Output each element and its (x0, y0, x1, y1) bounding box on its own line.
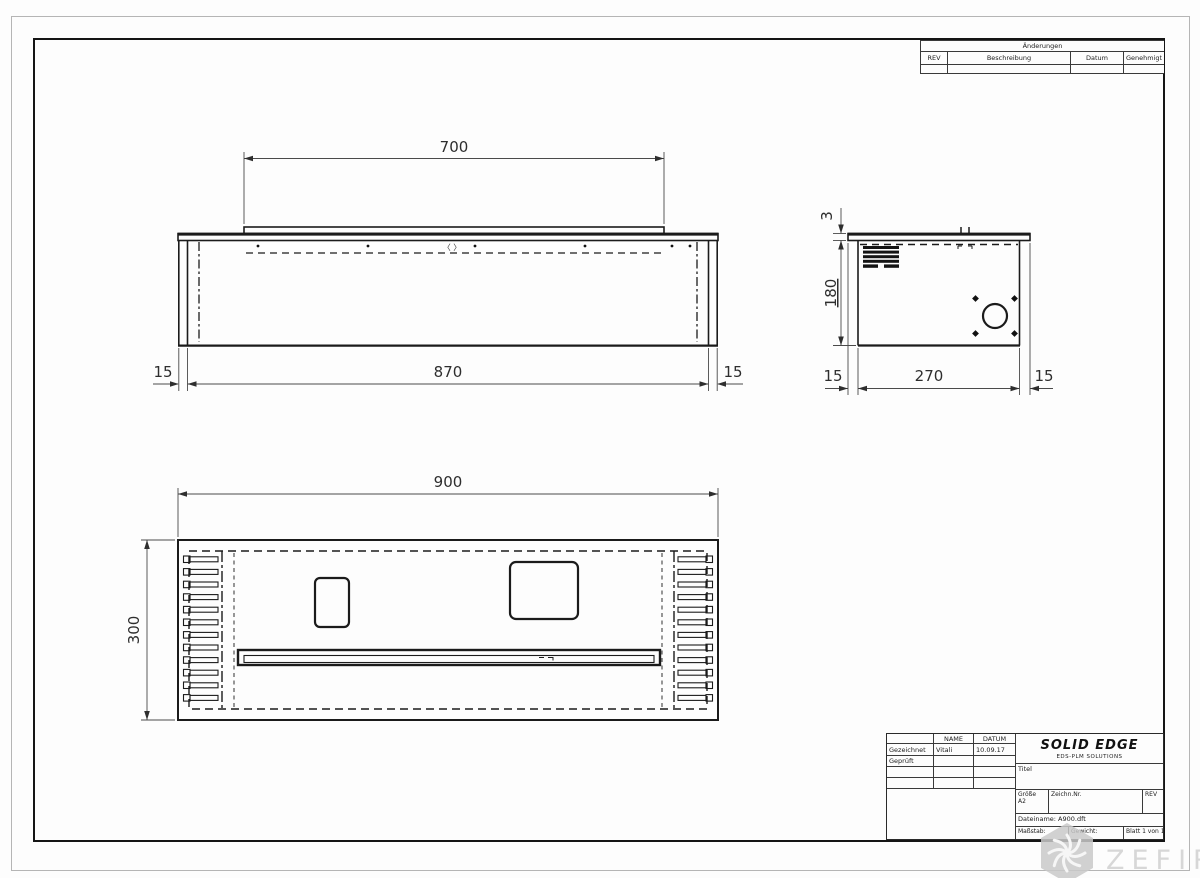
front-dimensions: 700 870 15 15 (153, 138, 743, 391)
revision-col-date: Datum (1071, 52, 1123, 64)
revision-col-description: Beschreibung (948, 52, 1070, 64)
revision-empty-cell (1071, 65, 1123, 73)
title-block-info: SOLID EDGE EDS-PLM SOLUTIONS Titel Größe… (1016, 734, 1163, 839)
side-tab-hidden-mark (958, 246, 972, 249)
tb-empty (934, 756, 973, 766)
revision-empty-cell (1124, 65, 1164, 73)
tb-title-field: Titel (1016, 764, 1163, 789)
tb-size-row: Größe A2 Zeichn.Nr. REV (1016, 790, 1163, 813)
side-vent-grille (863, 246, 899, 268)
tb-drawn-date: 10.09.17 (974, 744, 1015, 755)
tb-empty (887, 734, 933, 743)
revision-table: Änderungen REV Beschreibung Datum Genehm… (920, 40, 1164, 74)
drawing-sheet: 〈 〉 700 870 15 15 (0, 0, 1200, 878)
front-screw-holes (257, 245, 692, 248)
dim-15-side-left-label: 15 (823, 367, 842, 385)
top-view (178, 540, 718, 720)
tb-checked-label: Geprüft (887, 756, 933, 766)
tb-filename: Dateiname: A900.dft (1016, 814, 1163, 826)
dim-870-label: 870 (434, 363, 463, 381)
tb-empty (934, 778, 973, 788)
revision-empty-cell (921, 65, 947, 73)
revision-col-approved: Genehmigt (1124, 52, 1164, 64)
tb-scale-row: Maßstab: Gewicht: Blatt 1 von 1 (1016, 827, 1163, 839)
tb-drawn-name: Vitali (934, 744, 973, 755)
tb-scale-cell: Maßstab: (1016, 827, 1069, 839)
tb-size-value: A2 (1018, 798, 1026, 805)
tb-empty (974, 756, 1015, 766)
tb-name-header: NAME (934, 734, 973, 743)
title-block-signatures: NAME DATUM Gezeichnet Vitali 10.09.17 Ge… (887, 734, 1015, 839)
dim-300-label: 300 (125, 616, 143, 645)
front-top-strip (244, 227, 664, 234)
fan-mount-holes (972, 295, 1018, 337)
tb-empty (887, 778, 933, 788)
top-outline (178, 540, 718, 720)
fan-opening-circle (983, 304, 1007, 328)
title-block: NAME DATUM Gezeichnet Vitali 10.09.17 Ge… (886, 733, 1164, 840)
revision-empty-cell (948, 65, 1070, 73)
tb-size-label: Größe (1018, 791, 1036, 798)
dim-180-label: 180 (822, 279, 840, 308)
revision-table-title: Änderungen (921, 41, 1164, 51)
dim-700-label: 700 (440, 138, 469, 156)
side-top-tabs (961, 227, 969, 233)
dim-15-side-right-label: 15 (1034, 367, 1053, 385)
revision-col-rev: REV (921, 52, 947, 64)
tb-weight-cell: Gewicht: (1069, 827, 1124, 839)
dim-3-label: 3 (818, 211, 836, 221)
side-view (848, 227, 1030, 346)
tb-rev-cell: REV (1143, 790, 1163, 813)
front-center-mark: 〈 〉 (443, 243, 462, 252)
tb-empty (934, 767, 973, 777)
tb-drawn-label: Gezeichnet (887, 744, 933, 755)
tb-empty (974, 778, 1015, 788)
dim-270-label: 270 (915, 367, 944, 385)
tb-sheet-cell: Blatt 1 von 1 (1124, 827, 1163, 839)
tb-empty (974, 767, 1015, 777)
brand-name: SOLID EDGE (1040, 738, 1138, 753)
dim-15-right-label: 15 (723, 363, 742, 381)
tb-notes-area (887, 789, 1015, 839)
tb-size-cell: Größe A2 (1016, 790, 1049, 813)
dim-15-left-label: 15 (153, 363, 172, 381)
dim-900-label: 900 (434, 473, 463, 491)
tb-date-header: DATUM (974, 734, 1015, 743)
brand-logo: SOLID EDGE EDS-PLM SOLUTIONS (1016, 734, 1163, 763)
tb-empty (887, 767, 933, 777)
front-view: 〈 〉 (178, 227, 718, 346)
brand-subtitle: EDS-PLM SOLUTIONS (1056, 754, 1122, 760)
tb-drawing-no-cell: Zeichn.Nr. (1049, 790, 1143, 813)
